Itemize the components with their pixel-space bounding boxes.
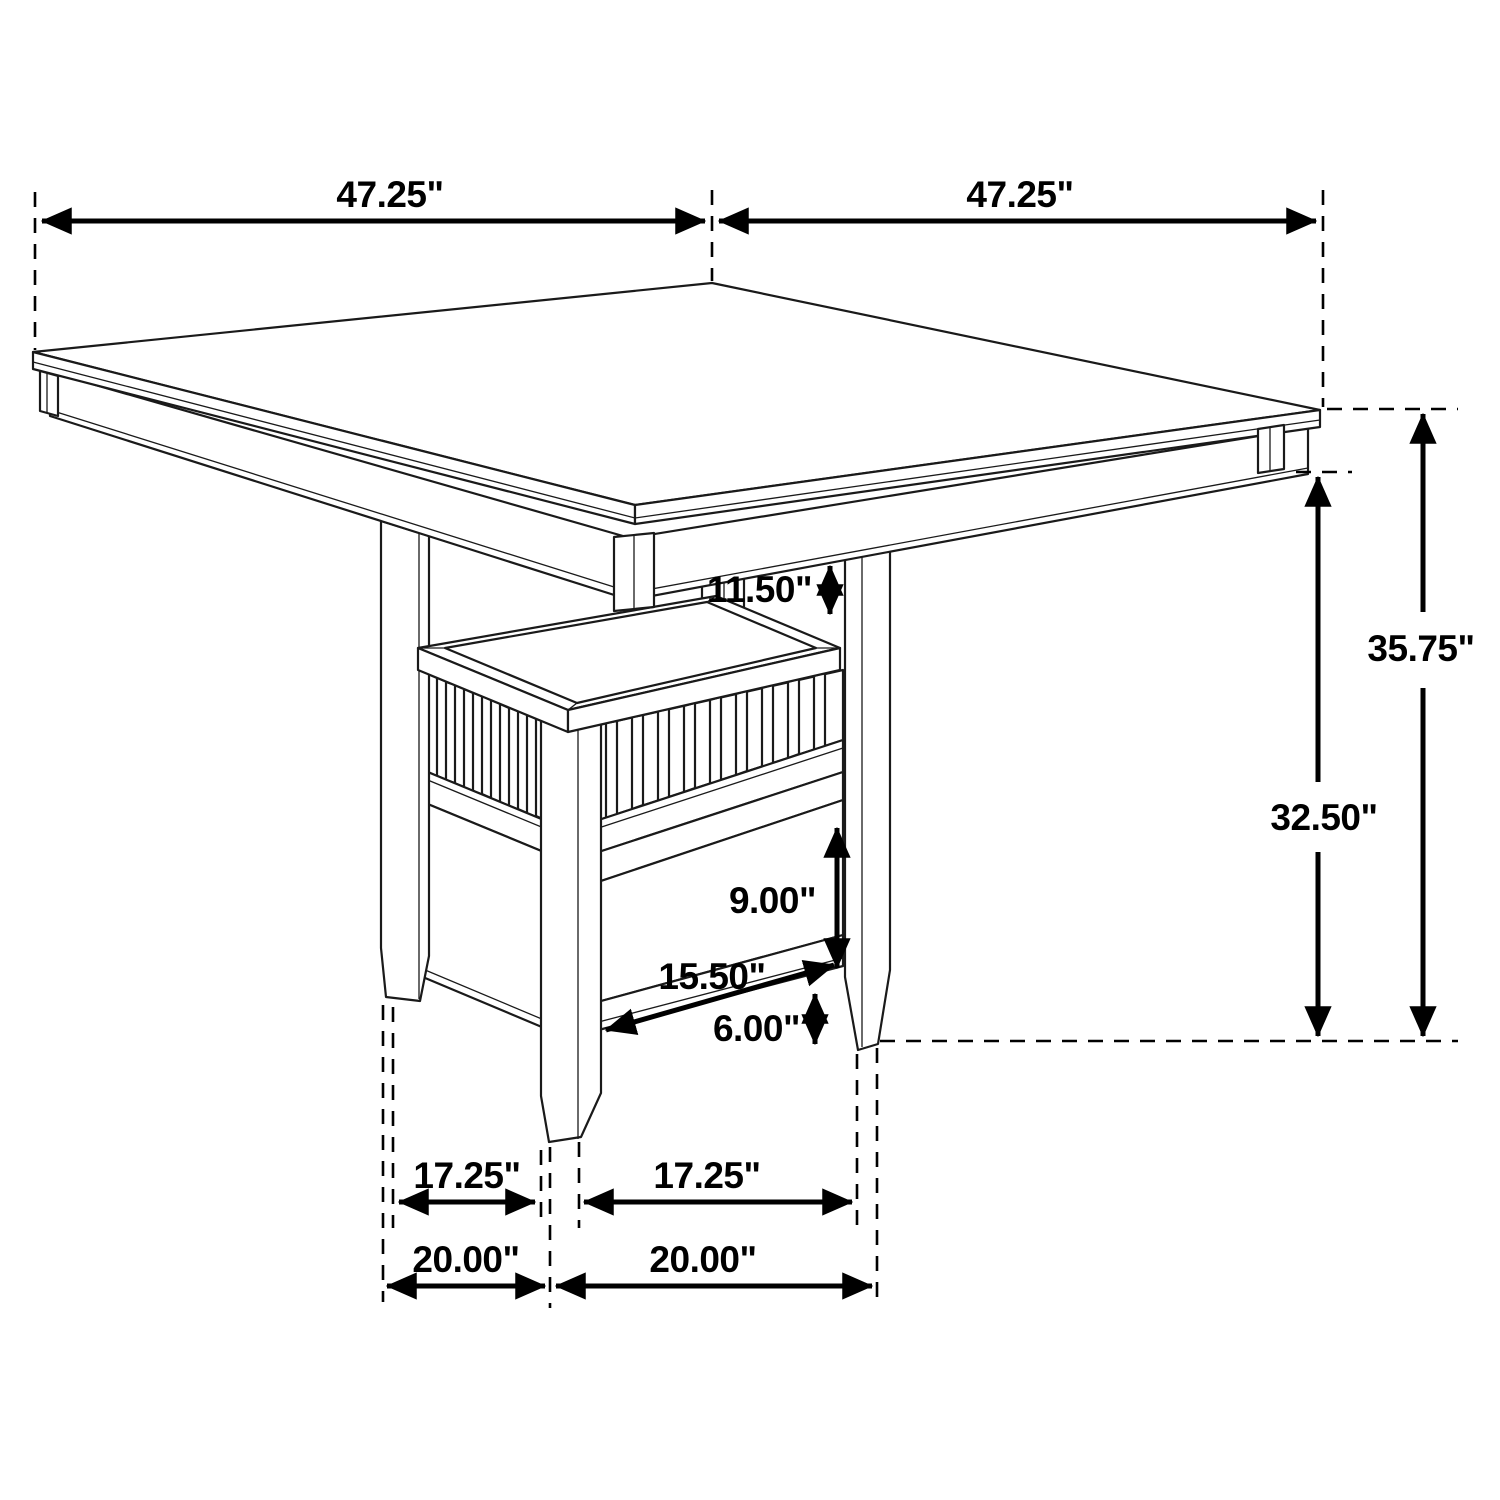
right-leg [845,541,890,1050]
dim-label-base-bottom-width: 15.50" [658,956,765,997]
dimension-diagram-page: 47.25" 47.25" 35.75" 32.50" 11.50" 9.00"… [0,0,1500,1500]
dim-label-drawer-section-height: 9.00" [729,880,816,921]
dim-label-feet-span-inner-right: 17.25" [653,1155,760,1196]
dim-feet-span-inner-right: 17.25" [584,1155,852,1202]
dim-label-top-width-right: 47.25" [966,174,1073,215]
dim-floor-clearance: 6.00" [713,994,815,1049]
dim-feet-span-outer-right: 20.00" [556,1239,872,1286]
dim-label-feet-span-outer-right: 20.00" [649,1239,756,1280]
pedestal-base [381,521,890,1142]
front-leg [541,712,601,1142]
dim-top-width-right: 47.25" [719,174,1316,221]
dim-label-apron-height: 32.50" [1270,797,1377,838]
dim-label-floor-clearance: 6.00" [713,1008,800,1049]
dim-label-top-to-basket-gap: 11.50" [707,569,812,610]
dim-feet-span-outer-left: 20.00" [387,1239,545,1286]
dim-apron-height: 32.50" [1270,477,1377,1036]
dim-overall-height: 35.75" [1367,414,1474,1036]
dim-label-overall-height: 35.75" [1367,628,1474,669]
dim-label-feet-span-inner-left: 17.25" [413,1155,520,1196]
dim-top-to-basket-gap: 11.50" [707,566,830,614]
dim-label-feet-span-outer-left: 20.00" [412,1239,519,1280]
table-dimension-diagram: 47.25" 47.25" 35.75" 32.50" 11.50" 9.00"… [0,0,1500,1500]
dim-top-width-left: 47.25" [42,174,705,221]
dim-label-top-width-left: 47.25" [336,174,443,215]
left-leg [381,521,429,1001]
dim-feet-span-inner-left: 17.25" [399,1155,535,1202]
